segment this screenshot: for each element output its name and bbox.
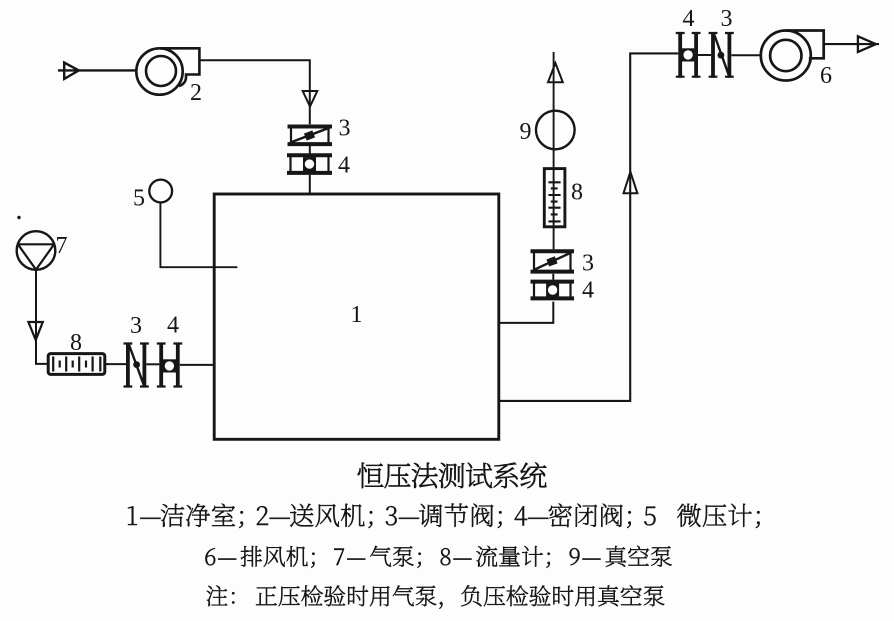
svg-text:3: 3 [721,6,733,32]
svg-text:8: 8 [70,330,82,356]
svg-text:9: 9 [520,119,532,145]
svg-text:4: 4 [167,313,179,339]
svg-text:4: 4 [338,153,350,179]
svg-text:5: 5 [133,186,145,212]
svg-text:3: 3 [339,116,351,142]
svg-text:8: 8 [571,180,583,206]
svg-text:3: 3 [582,251,594,277]
svg-text:4: 4 [582,278,594,304]
svg-text:6: 6 [820,63,832,89]
svg-text:7: 7 [56,233,68,259]
svg-text:3: 3 [130,313,142,339]
svg-text:4: 4 [683,6,695,32]
svg-text:1: 1 [351,302,363,328]
svg-text:2: 2 [190,80,202,106]
